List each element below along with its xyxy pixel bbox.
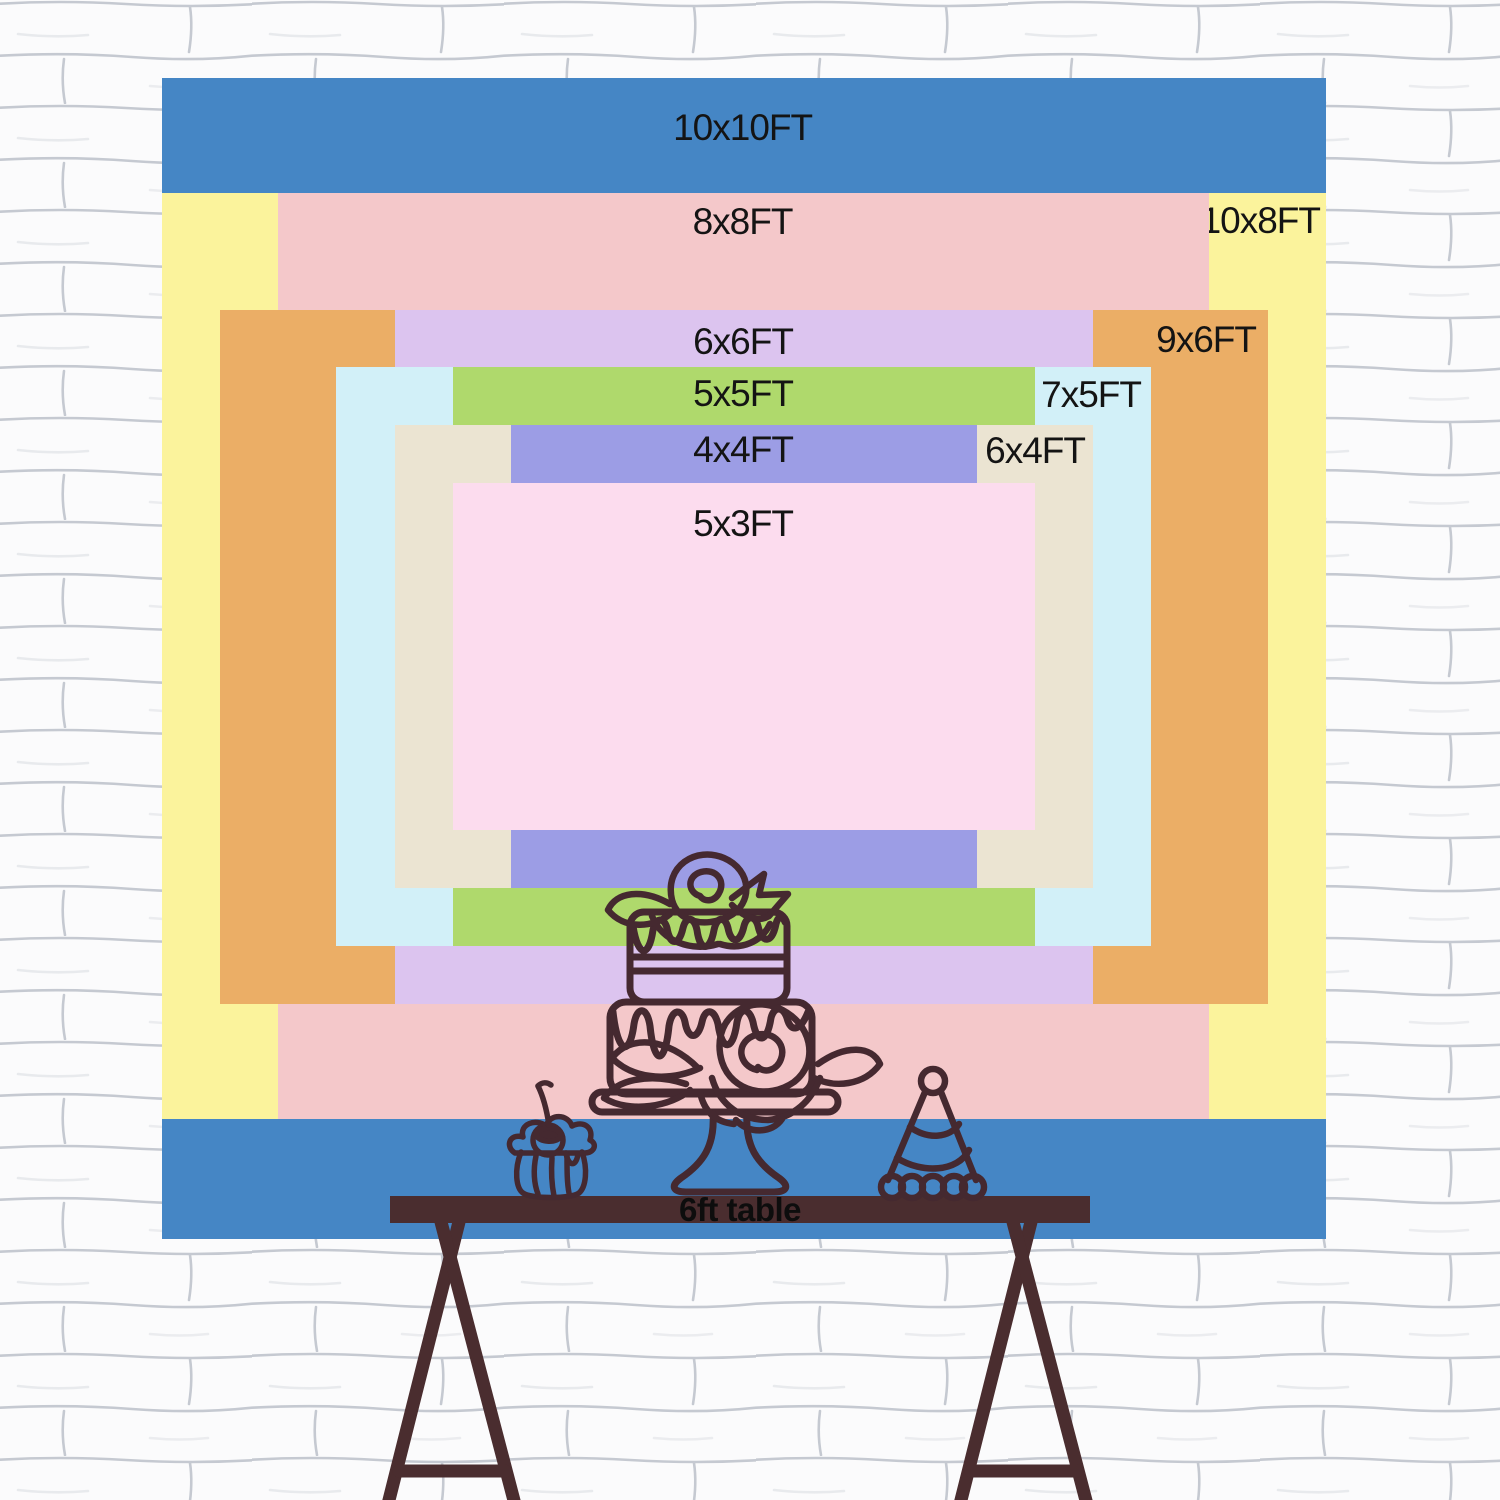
size-label-6x4: 6x4FT xyxy=(985,431,1085,472)
backdrop-size-chart: 10x10FT 10x8FT 8x8FT 9x6FT 6x6FT 7x5FT 5… xyxy=(162,78,1326,1239)
size-label-6x6: 6x6FT xyxy=(693,322,793,363)
size-label-5x5: 5x5FT xyxy=(693,374,793,415)
size-label-8x8: 8x8FT xyxy=(693,202,793,243)
table-size-label: 6ft table xyxy=(679,1191,801,1229)
backdrop-rect-5x3: 5x3FT xyxy=(453,483,1035,830)
size-label-10x8: 10x8FT xyxy=(1201,201,1320,242)
size-label-9x6: 9x6FT xyxy=(1156,320,1256,361)
size-label-4x4: 4x4FT xyxy=(693,430,793,471)
size-label-7x5: 7x5FT xyxy=(1041,375,1141,416)
size-label-5x3: 5x3FT xyxy=(693,504,793,545)
size-label-10x10: 10x10FT xyxy=(673,108,812,149)
